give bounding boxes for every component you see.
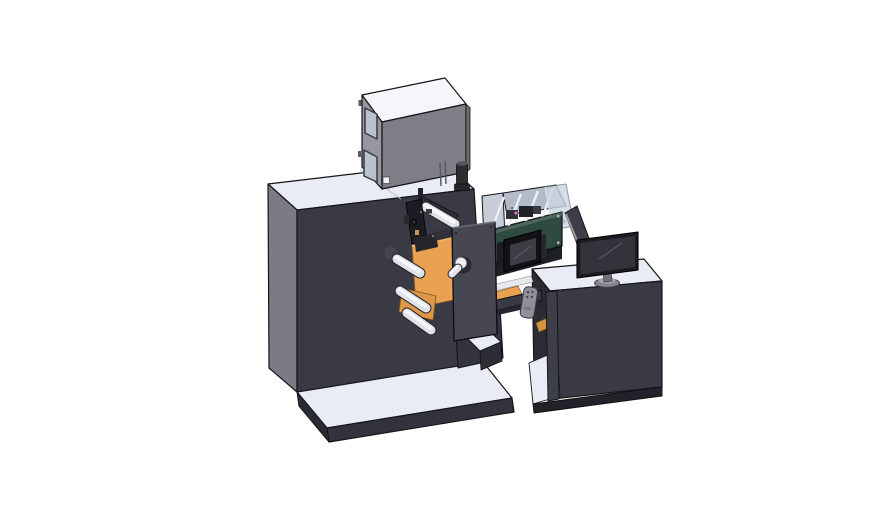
filterbox-hinge-lower — [358, 151, 361, 157]
exhaust-cylinder — [455, 161, 470, 190]
filterbox-window-upper — [365, 108, 377, 139]
cad-render-canvas — [0, 0, 888, 522]
machine-render — [0, 0, 888, 522]
filterbox-label-plate — [383, 177, 390, 184]
filterbox-hinge-upper — [359, 100, 362, 106]
desk-front-leg — [546, 291, 559, 401]
magenta-part-small — [514, 211, 517, 214]
front-cover-plate — [452, 222, 498, 341]
desk-front-face — [550, 281, 662, 399]
touchscreen-side-tab — [541, 234, 546, 259]
filter-box — [358, 78, 470, 191]
filterbox-right-edge — [466, 104, 470, 172]
cabinet-left-face — [268, 184, 297, 392]
